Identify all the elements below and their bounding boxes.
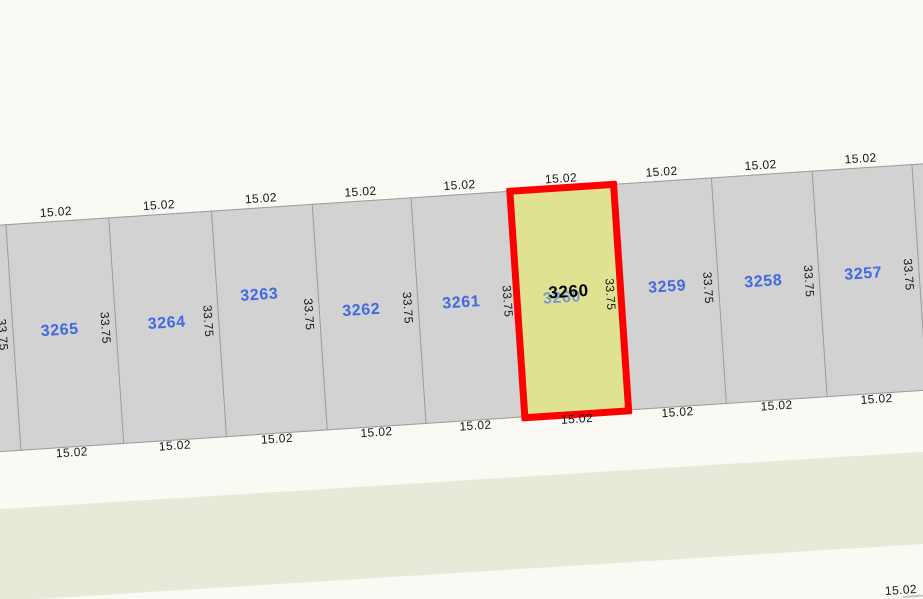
parcel-number-label: 3264 [147,314,186,334]
depth-dim-label: 33.75 [900,258,916,291]
map-canvas[interactable]: 33.7533.7533.7533.7533.7533.7533.7533.75… [0,0,923,599]
frontage-dim-label-top: 15.02 [39,204,72,220]
frontage-dim-label-bottom: 15.02 [860,391,893,407]
frontage-dim-label-bottom: 15.02 [360,424,393,440]
frontage-dim-label-top: 15.02 [443,177,476,193]
frontage-dim-label-bottom: 15.02 [760,398,793,414]
frontage-dim-label-top: 15.02 [344,184,377,200]
depth-dim-label: 33.75 [700,271,716,304]
parcel-number-label: 3261 [442,293,481,313]
parcel-number-label: 3265 [40,321,79,341]
selected-parcel-number-label: 3260 [548,281,589,304]
frontage-dim-label-bottom: 15.02 [158,437,191,453]
parcel-number-label: 3263 [240,285,279,305]
parcel-number-label: 3258 [744,272,783,292]
depth-dim-label: 33.75 [0,318,10,351]
depth-dim-label: 33.75 [200,305,216,338]
frontage-dim-label-top: 15.02 [744,157,777,173]
parcel-number-label: 3262 [342,301,381,321]
frontage-dim-label-top: 15.02 [142,197,175,213]
depth-dim-label: 33.75 [800,265,816,298]
depth-dim-label: 33.75 [602,278,618,311]
depth-dim-label: 33.75 [399,291,415,324]
frontage-dim-label-bottom: 15.02 [55,444,88,460]
parcel-number-label: 3259 [648,277,687,297]
frontage-dim-label-bottom: 15.02 [260,431,293,447]
greenway-band [0,445,923,599]
frontage-dim-label-top: 15.02 [545,170,578,186]
frontage-dim-label-bottom: 15.02 [459,418,492,434]
depth-dim-label: 33.75 [499,285,515,318]
frontage-dim-label-bottom: 15.02 [561,411,594,427]
frontage-dim-label-top: 15.02 [244,190,277,206]
parcel-number-label: 3257 [844,264,883,284]
frontage-dim-label-bottom: 15.02 [661,404,694,420]
depth-dim-label: 33.75 [97,311,113,344]
depth-dim-label: 33.75 [301,298,317,331]
parcel-layer: 33.7533.7533.7533.7533.7533.7533.7533.75… [0,160,923,456]
frontage-dim-label-top: 15.02 [645,164,678,180]
adjacent-row-dim-label: 15.02 [885,582,918,598]
frontage-dim-label-top: 15.02 [844,150,877,166]
